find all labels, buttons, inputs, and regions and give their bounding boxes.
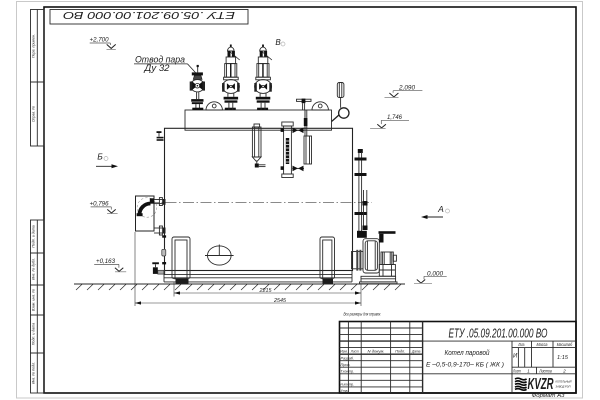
svg-text:Утв.: Утв. — [341, 388, 349, 393]
svg-text:Т.контр.: Т.контр. — [341, 368, 355, 373]
svg-text:Котел паровой: Котел паровой — [445, 349, 490, 357]
svg-text:Перв. примен.: Перв. примен. — [32, 34, 36, 58]
svg-text:Листов: Листов — [538, 368, 552, 373]
svg-text:+2,700: +2,700 — [90, 37, 110, 43]
svg-text:Пров.: Пров. — [341, 362, 351, 367]
svg-text:Разраб.: Разраб. — [341, 355, 355, 360]
svg-text:Ду 32: Ду 32 — [143, 63, 169, 73]
svg-text:Взам. инв. №: Взам. инв. № — [32, 289, 36, 311]
svg-text:Справ. №: Справ. № — [32, 106, 36, 122]
svg-text:Н.контр.: Н.контр. — [341, 382, 355, 387]
svg-text:ЕТУ .05.09.201.00.000 ВО: ЕТУ .05.09.201.00.000 ВО — [449, 326, 548, 340]
svg-text:Масса: Масса — [537, 342, 549, 347]
svg-text:А: А — [437, 204, 444, 214]
svg-text:Б: Б — [97, 152, 103, 162]
svg-text:1,746: 1,746 — [387, 115, 403, 121]
svg-text:KVZR: KVZR — [528, 376, 554, 393]
svg-text:Изм.: Изм. — [340, 349, 348, 354]
svg-text:Подп.: Подп. — [395, 349, 405, 354]
svg-text:Лист: Лист — [512, 368, 521, 373]
svg-text:2545: 2545 — [273, 298, 286, 304]
svg-text:Инв. № подл.: Инв. № подл. — [32, 362, 36, 384]
svg-text:N докум.: N докум. — [368, 349, 385, 354]
svg-text:Е –0,5-0,9-170– КБ ( ЖК ): Е –0,5-0,9-170– КБ ( ЖК ) — [426, 362, 504, 369]
svg-text:Все размеры для справок: Все размеры для справок — [344, 312, 382, 317]
svg-text:Подп. и дата: Подп. и дата — [32, 323, 36, 346]
svg-text:Лист: Лист — [350, 349, 359, 354]
svg-text:Подп. и дата: Подп. и дата — [32, 225, 36, 248]
svg-text:Дата: Дата — [411, 349, 421, 354]
svg-text:И: И — [513, 354, 518, 360]
svg-text:В: В — [275, 38, 281, 47]
svg-text:ЕТУ .05.09.201.00.000 ВО: ЕТУ .05.09.201.00.000 ВО — [63, 9, 235, 20]
svg-text:Масштаб: Масштаб — [557, 342, 573, 347]
svg-text:2215: 2215 — [258, 288, 271, 294]
svg-text:2: 2 — [562, 368, 566, 373]
svg-text:КОТЕЛЬНЫЙ: КОТЕЛЬНЫЙ — [556, 380, 573, 384]
svg-text:1:15: 1:15 — [557, 355, 569, 361]
svg-text:Формат А3: Формат А3 — [532, 393, 565, 399]
svg-text:Инв. № дубл.: Инв. № дубл. — [32, 258, 36, 280]
svg-text:Лит.: Лит. — [517, 342, 525, 347]
svg-text:ЗАВОД РЭП: ЗАВОД РЭП — [556, 384, 572, 388]
